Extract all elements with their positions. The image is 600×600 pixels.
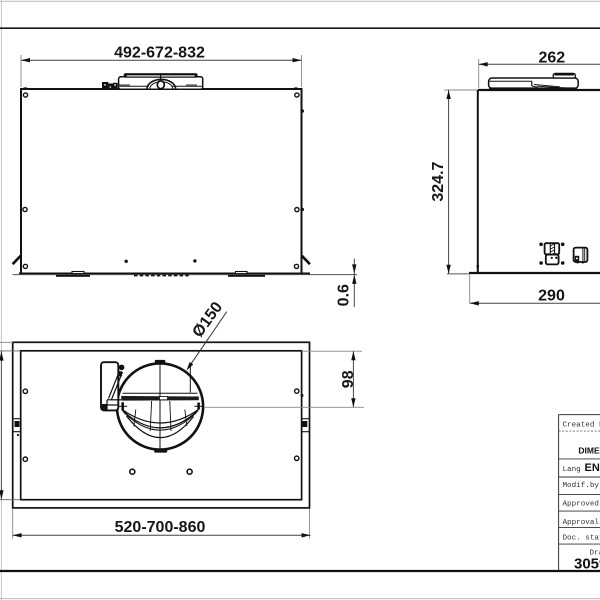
- svg-text:30590: 30590: [574, 556, 600, 573]
- svg-text:290: 290: [538, 287, 565, 304]
- svg-text:ENG: ENG: [585, 462, 600, 474]
- svg-text:Modif.by: Modif.by: [563, 482, 600, 490]
- svg-text:492-672-832: 492-672-832: [114, 45, 205, 62]
- svg-text:262: 262: [538, 49, 565, 66]
- svg-text:Approval: Approval: [563, 519, 600, 527]
- svg-text:Doc. status: Doc. status: [563, 535, 600, 543]
- svg-text:324.7: 324.7: [430, 161, 447, 201]
- svg-text:0.6: 0.6: [336, 284, 353, 306]
- svg-text:Lang: Lang: [563, 466, 581, 474]
- svg-text:Approved by: Approved by: [563, 501, 600, 509]
- svg-text:DIMENSIONS: DIMENSIONS: [578, 446, 600, 456]
- svg-text:98: 98: [340, 370, 357, 388]
- svg-text:520-700-860: 520-700-860: [115, 519, 206, 536]
- svg-text:Created by: Created by: [563, 422, 600, 430]
